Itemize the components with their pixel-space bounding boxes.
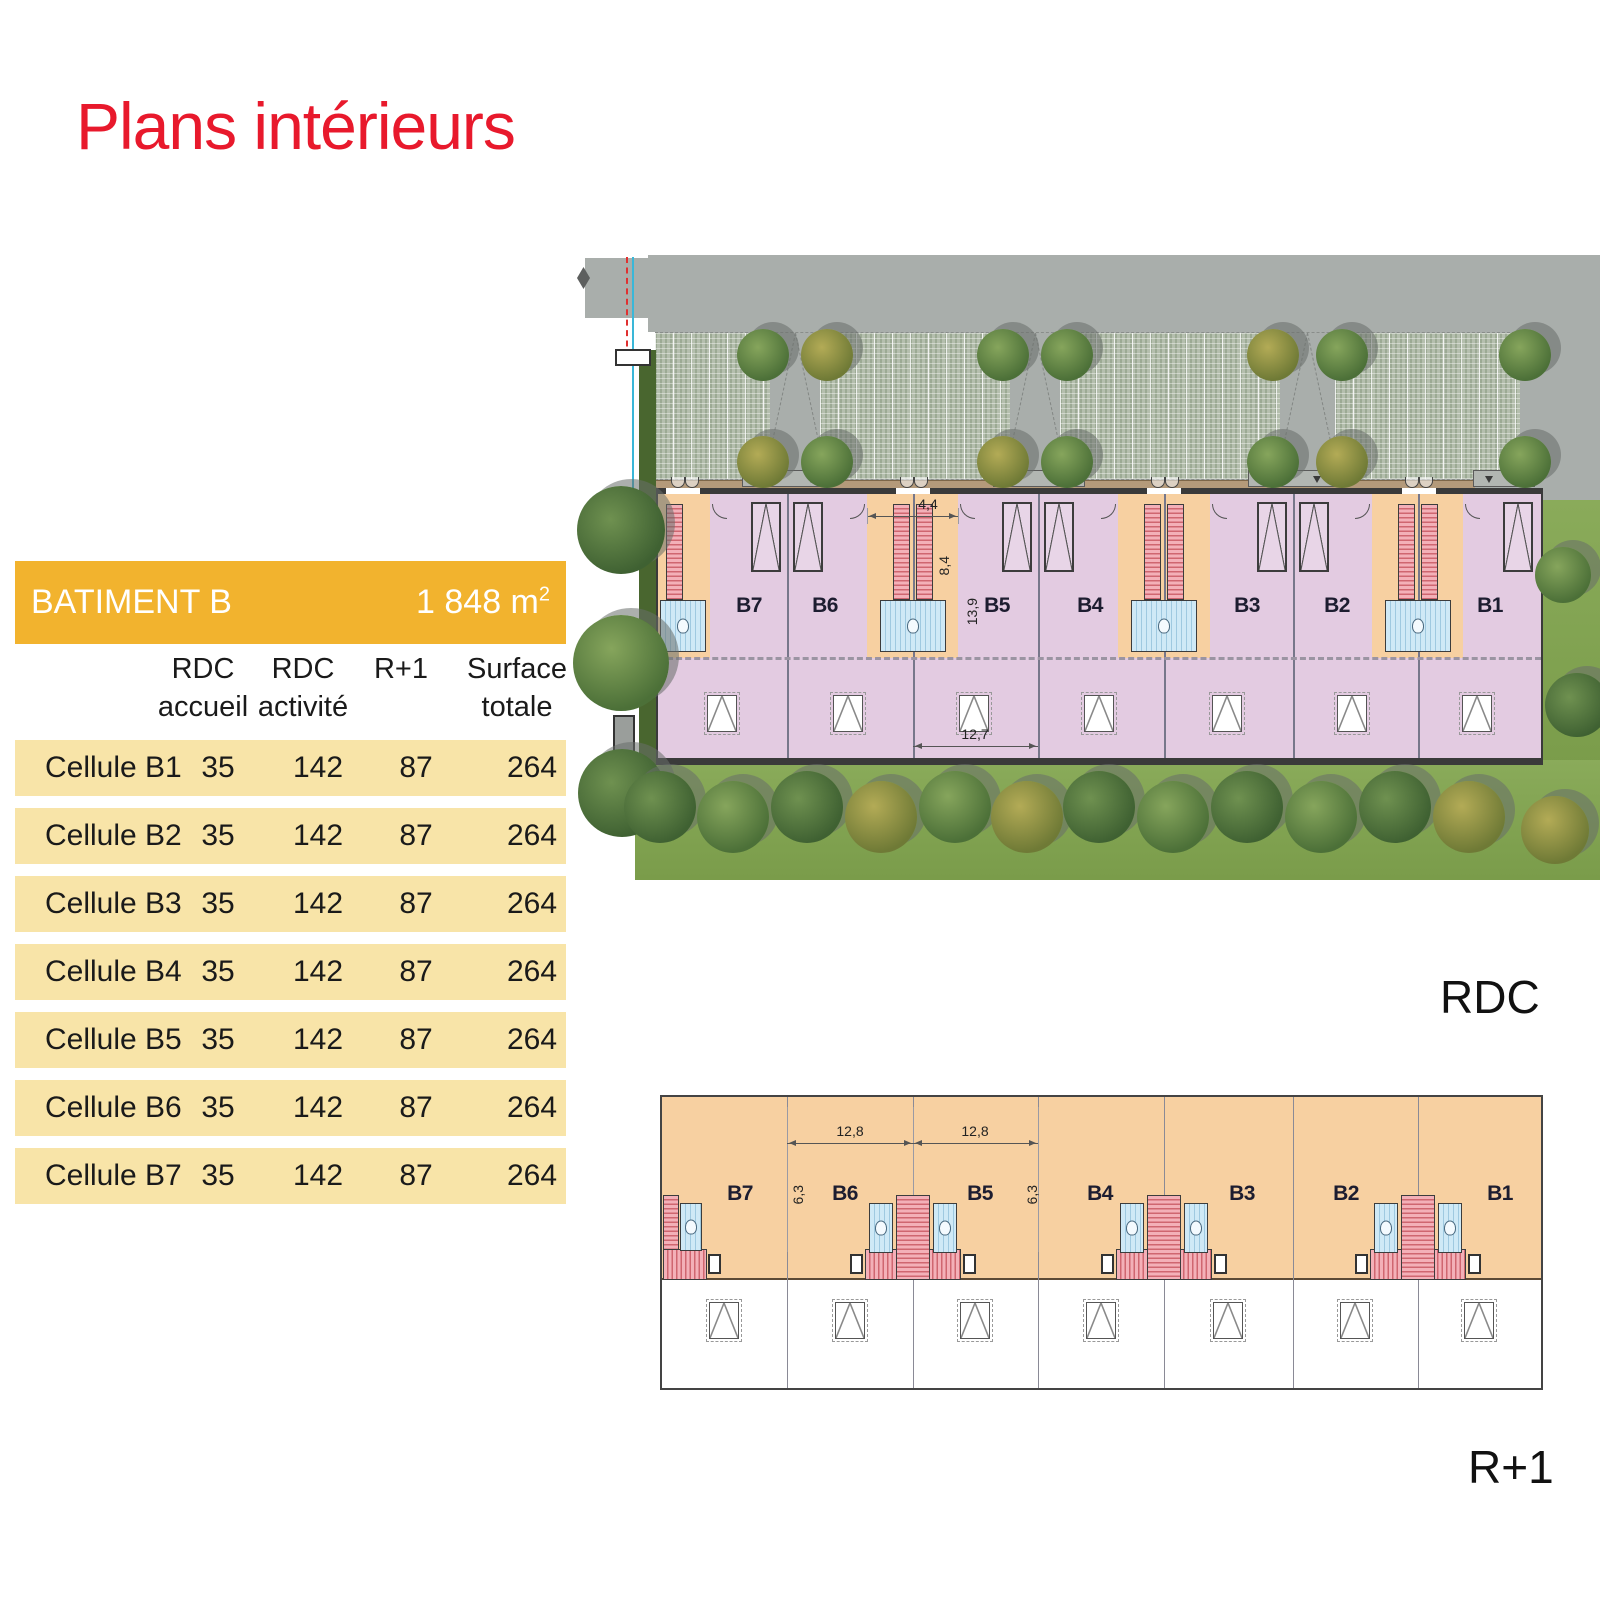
entrance-doors: [900, 477, 928, 488]
skylight: [1337, 695, 1367, 732]
cell-value: 87: [361, 1012, 471, 1068]
r1-floor-label: R+1: [1468, 1440, 1554, 1494]
sanitary-room: [660, 600, 706, 652]
door-swing: [960, 504, 975, 519]
tree-icon: [801, 329, 853, 381]
dim-mezzanine-depth: 6,3: [790, 1185, 806, 1204]
tree-icon: [1211, 771, 1283, 843]
sectional-door: [793, 502, 823, 572]
cell-value: 142: [263, 1080, 373, 1136]
party-wall: [1038, 494, 1040, 758]
cell-label-b7: B7: [714, 594, 784, 618]
cell-label-b7: B7: [705, 1182, 775, 1206]
sectional-door: [1044, 502, 1074, 572]
door-cabinet: [1101, 1254, 1114, 1274]
entrance-doors: [1151, 477, 1179, 488]
door-swing: [1465, 504, 1480, 519]
cell-value: 142: [263, 740, 373, 796]
sectional-door: [1503, 502, 1533, 572]
skylight: [835, 1302, 865, 1339]
tree-icon: [1063, 771, 1135, 843]
table-row: Cellule B6 35 142 87 264: [15, 1080, 566, 1136]
skylight: [1213, 1302, 1243, 1339]
page-title: Plans intérieurs: [76, 88, 515, 164]
column-header-surface-totale: Surface totale: [462, 650, 572, 740]
building-r1: 12,8 12,8 6,3 6,3: [660, 1095, 1543, 1390]
cell-value: 264: [477, 1080, 587, 1136]
column-header-rdc-accueil: RDC accueil: [148, 650, 258, 740]
row-label: Cellule B2: [45, 808, 182, 864]
door-opening: [1147, 488, 1181, 494]
door-opening: [1402, 488, 1436, 494]
tree-icon: [1535, 547, 1591, 603]
cell-value: 87: [361, 876, 471, 932]
cell-value: 264: [477, 740, 587, 796]
dimension-tick: [1038, 1107, 1039, 1252]
skylight: [833, 695, 863, 732]
dimension-line: [867, 516, 958, 517]
door-swing: [1101, 504, 1116, 519]
sanitary-room: [1120, 1203, 1144, 1253]
skylight: [1462, 695, 1492, 732]
tree-icon: [1285, 781, 1357, 853]
staircase: [1401, 1195, 1435, 1280]
road-access: [585, 258, 665, 318]
tree-icon: [1499, 436, 1551, 488]
dimension-line: [913, 1143, 1038, 1144]
dim-building-depth: 13,9: [964, 598, 980, 625]
site-boundary-red: [626, 257, 628, 357]
tree-icon: [1545, 673, 1600, 737]
staircase: [896, 1195, 930, 1280]
tree-icon: [1433, 781, 1505, 853]
cell-label-b1: B1: [1455, 594, 1525, 618]
cell-value: 35: [163, 808, 273, 864]
staircase: [666, 504, 683, 600]
skylight: [1212, 695, 1242, 732]
table-row: Cellule B2 35 142 87 264: [15, 808, 566, 864]
door-cabinet: [1214, 1254, 1227, 1274]
dim-mezzanine-depth: 6,3: [1024, 1185, 1040, 1204]
tree-icon: [737, 329, 789, 381]
tree-icon: [1499, 329, 1551, 381]
table-row: Cellule B5 35 142 87 264: [15, 1012, 566, 1068]
cell-value: 35: [163, 876, 273, 932]
staircase: [1147, 1195, 1181, 1280]
door-cabinet: [708, 1254, 721, 1274]
tree-icon: [977, 329, 1029, 381]
door-cabinet: [963, 1254, 976, 1274]
column-header-line: totale: [462, 688, 572, 726]
cell-value: 142: [263, 1148, 373, 1204]
sanitary-room: [1385, 600, 1451, 652]
row-label: Cellule B1: [45, 740, 182, 796]
column-header-line: R+1: [346, 650, 456, 688]
party-wall: [787, 494, 789, 758]
cell-label-b6: B6: [810, 1182, 880, 1206]
row-label: Cellule B7: [45, 1148, 182, 1204]
tree-icon: [577, 486, 665, 574]
column-header-line: RDC: [148, 650, 258, 688]
door-swing: [1355, 504, 1370, 519]
tree-icon: [771, 771, 843, 843]
sectional-door: [1299, 502, 1329, 572]
column-header-rdc-activite: RDC activité: [248, 650, 358, 740]
table-title: BATIMENT B: [31, 583, 232, 622]
column-header-line: accueil: [148, 688, 258, 726]
road: [648, 255, 1600, 332]
cell-value: 87: [361, 1148, 471, 1204]
tree-icon: [1316, 329, 1368, 381]
tree-icon: [1137, 781, 1209, 853]
cell-value: 142: [263, 808, 373, 864]
cell-value: 35: [163, 944, 273, 1000]
sectional-door: [1002, 502, 1032, 572]
cell-label-b4: B4: [1055, 594, 1125, 618]
row-label: Cellule B3: [45, 876, 182, 932]
tree-icon: [1247, 436, 1299, 488]
sectional-door: [751, 502, 781, 572]
cell-value: 264: [477, 808, 587, 864]
cell-value: 142: [263, 1012, 373, 1068]
door-swing: [1212, 504, 1227, 519]
dim-cell-width: 12,7: [945, 726, 1005, 742]
staircase: [1421, 504, 1438, 600]
tree-icon: [801, 436, 853, 488]
cell-value: 264: [477, 1012, 587, 1068]
cell-label-b4: B4: [1065, 1182, 1135, 1206]
sanitary-room: [869, 1203, 893, 1253]
cell-label-b6: B6: [790, 594, 860, 618]
tree-icon: [1316, 436, 1368, 488]
sanitary-room: [880, 600, 946, 652]
door-swing: [712, 504, 727, 519]
entrance-doors: [671, 477, 699, 488]
table-row: Cellule B4 35 142 87 264: [15, 944, 566, 1000]
building-rdc: B7 B6 B5 B4 B3 B2 B1 4,4 8,4 13,9 12,7: [656, 488, 1543, 765]
cell-value: 142: [263, 876, 373, 932]
tree-icon: [1247, 329, 1299, 381]
door-opening: [896, 488, 930, 494]
cell-value: 264: [477, 1148, 587, 1204]
cell-label-b1: B1: [1465, 1182, 1535, 1206]
party-wall: [1293, 1097, 1294, 1388]
door-cabinet: [850, 1254, 863, 1274]
party-wall: [1293, 494, 1295, 758]
area-exponent: 2: [539, 584, 550, 606]
staircase: [1167, 504, 1184, 600]
dimension-tick: [958, 508, 959, 524]
skylight: [1084, 695, 1114, 732]
staircase: [1144, 504, 1161, 600]
mezzanine-edge-dashed: [658, 657, 1541, 660]
staircase: [916, 504, 933, 600]
column-header-line: RDC: [248, 650, 358, 688]
cell-value: 35: [163, 1012, 273, 1068]
site-boundary-blue: [632, 257, 634, 499]
door-swing: [850, 504, 865, 519]
cell-label-b2: B2: [1302, 594, 1372, 618]
tree-icon: [1521, 796, 1589, 864]
tree-icon: [991, 781, 1063, 853]
skylight: [709, 1302, 739, 1339]
staircase: [893, 504, 910, 600]
sanitary-room: [1374, 1203, 1398, 1253]
skylight: [1340, 1302, 1370, 1339]
cell-value: 264: [477, 876, 587, 932]
dimension-tick: [867, 508, 868, 524]
dimension-tick: [787, 1107, 788, 1252]
sanitary-room: [1131, 600, 1197, 652]
tree-icon: [1041, 436, 1093, 488]
cell-label-b2: B2: [1311, 1182, 1381, 1206]
cell-label-b5: B5: [945, 1182, 1015, 1206]
rdc-site-plan: B7 B6 B5 B4 B3 B2 B1 4,4 8,4 13,9 12,7: [575, 255, 1600, 880]
cell-value: 264: [477, 944, 587, 1000]
table-row: Cellule B1 35 142 87 264: [15, 740, 566, 796]
cell-value: 87: [361, 1080, 471, 1136]
row-label: Cellule B5: [45, 1012, 182, 1068]
tree-icon: [919, 771, 991, 843]
cell-value: 142: [263, 944, 373, 1000]
rdc-floor-label: RDC: [1440, 970, 1540, 1024]
r1-floor-plan: 12,8 12,8 6,3 6,3: [655, 1090, 1550, 1400]
skylight: [960, 1302, 990, 1339]
dim-entrance-depth: 8,4: [936, 556, 952, 575]
cell-label-b3: B3: [1207, 1182, 1277, 1206]
table-header-bar: BATIMENT B 1 848 m2: [15, 561, 566, 644]
tree-icon: [624, 771, 696, 843]
row-label: Cellule B6: [45, 1080, 182, 1136]
cell-value: 35: [163, 740, 273, 796]
skylight: [1464, 1302, 1494, 1339]
tree-icon: [1041, 329, 1093, 381]
table-row: Cellule B3 35 142 87 264: [15, 876, 566, 932]
cell-value: 87: [361, 944, 471, 1000]
dim-cell-width-b6: 12,8: [820, 1123, 880, 1139]
dimension-line: [787, 1143, 913, 1144]
tree-icon: [697, 781, 769, 853]
staircase: [663, 1249, 707, 1280]
skylight: [1086, 1302, 1116, 1339]
sanitary-room: [1184, 1203, 1208, 1253]
sectional-door: [1257, 502, 1287, 572]
skylight: [707, 695, 737, 732]
table-row: Cellule B7 35 142 87 264: [15, 1148, 566, 1204]
cell-value: 87: [361, 740, 471, 796]
cell-value: 87: [361, 808, 471, 864]
column-header-line: Surface: [462, 650, 572, 688]
sanitary-room: [1438, 1203, 1462, 1253]
cell-label-b3: B3: [1212, 594, 1282, 618]
sanitary-room: [933, 1203, 957, 1253]
tree-icon: [737, 436, 789, 488]
tree-icon: [845, 781, 917, 853]
door-opening: [666, 488, 700, 494]
dim-cell-width-b5: 12,8: [945, 1123, 1005, 1139]
dimension-line: [913, 746, 1038, 747]
staircase: [1398, 504, 1415, 600]
column-header-r1: R+1: [346, 650, 456, 740]
sanitary-room: [680, 1203, 702, 1251]
table-total-area: 1 848 m2: [416, 583, 550, 622]
tree-icon: [977, 436, 1029, 488]
entrance-doors: [1405, 477, 1433, 488]
door-cabinet: [1355, 1254, 1368, 1274]
cell-value: 35: [163, 1080, 273, 1136]
dim-entrance-width: 4,4: [898, 496, 958, 512]
tree-icon: [573, 615, 669, 711]
row-label: Cellule B4: [45, 944, 182, 1000]
cell-value: 35: [163, 1148, 273, 1204]
site-entrance-marker: [615, 349, 651, 366]
door-cabinet: [1468, 1254, 1481, 1274]
column-header-line: activité: [248, 688, 358, 726]
tree-icon: [1359, 771, 1431, 843]
